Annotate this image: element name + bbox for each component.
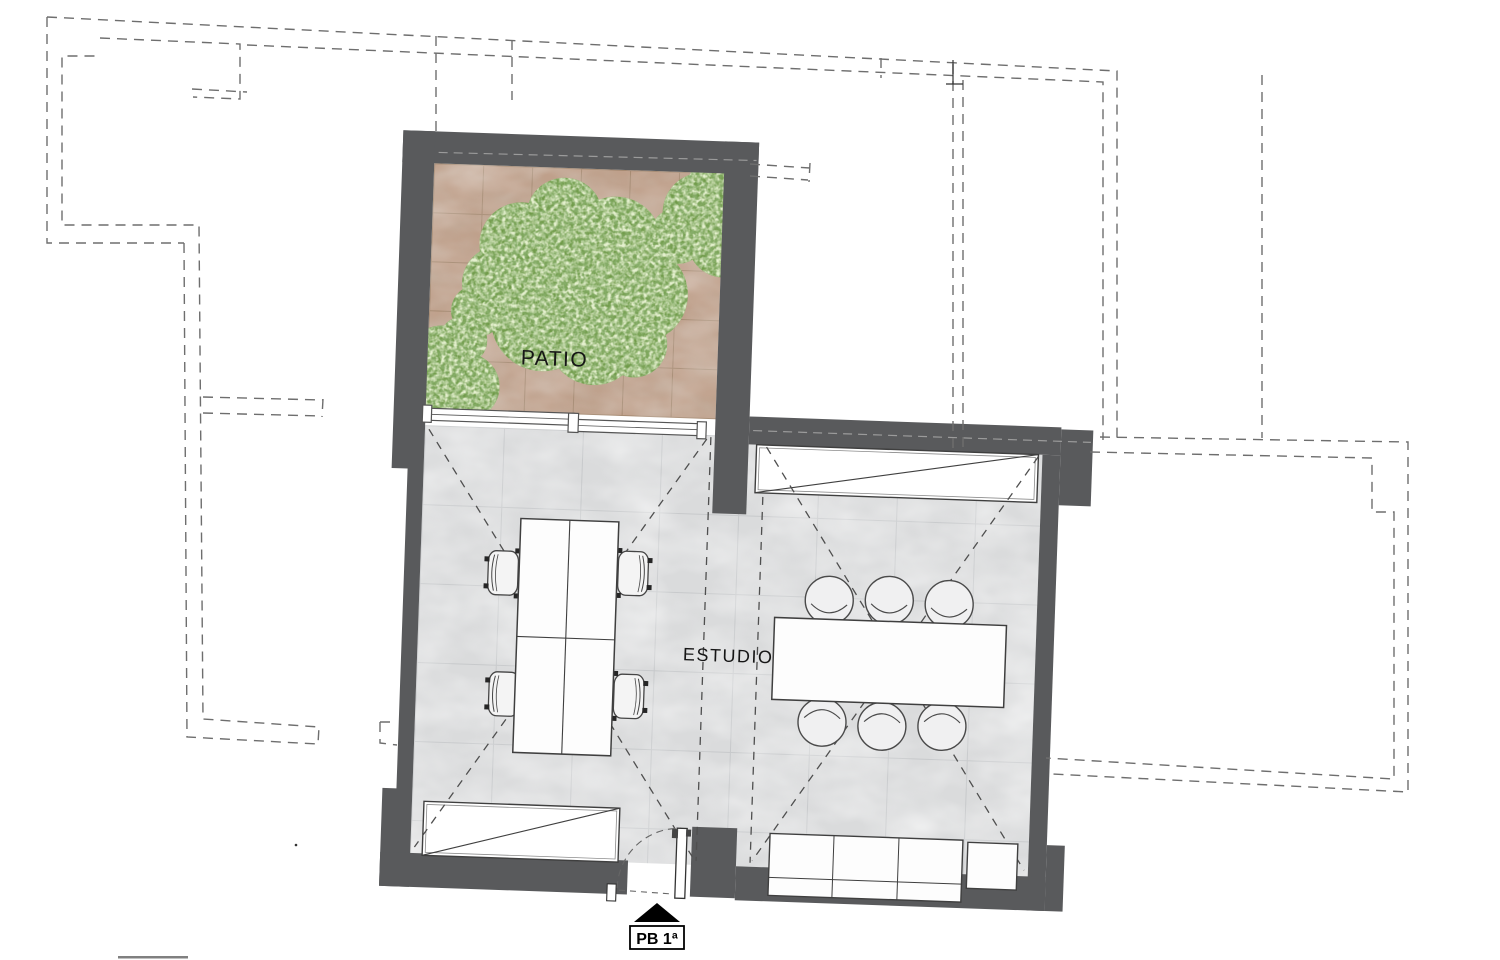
neighbor-outline-stub-patio: [750, 163, 810, 182]
door-hinge: [672, 829, 678, 838]
sofa: [768, 833, 963, 902]
entry-marker: PB 1ª: [630, 903, 684, 949]
floor-plan-page: PATIO ESTUDIO PB 1ª: [0, 0, 1500, 960]
floor-plan-canvas: PATIO ESTUDIO PB 1ª: [0, 0, 1500, 960]
floor-plan: PATIO ESTUDIO: [377, 130, 1103, 917]
entry-label: PB 1ª: [636, 931, 678, 948]
side-table: [966, 842, 1018, 890]
neighbor-outline-right-inner: [1046, 452, 1394, 779]
survey-tick-marks: [946, 60, 963, 84]
door-threshold: [619, 890, 674, 894]
scan-artifact-dot: [295, 844, 298, 847]
round-chair-top-3: [924, 580, 974, 630]
patio-label: PATIO: [520, 346, 588, 371]
neighbor-outline-bracket-left-wall: [380, 722, 397, 745]
door-hinge-2: [686, 829, 691, 836]
wall-pier-top-right: [1059, 429, 1094, 506]
door-leaf: [675, 828, 687, 898]
studio-label: ESTUDIO: [683, 644, 774, 667]
round-chair-bottom-2: [857, 701, 907, 751]
window-top-right: [755, 445, 1039, 503]
round-chair-top-1: [804, 576, 854, 626]
neighbor-outline-cross-wall: [953, 64, 963, 453]
wall-pier-bottom-right: [1045, 845, 1065, 912]
wall-door-block: [690, 827, 737, 899]
window-bottom-left: [422, 801, 620, 862]
dining-table: [772, 617, 1007, 707]
round-chair-bottom-1: [797, 697, 847, 747]
round-chair-bottom-3: [917, 702, 967, 752]
door-jamb-left: [607, 884, 617, 901]
entry-arrow-icon: [634, 903, 680, 922]
scan-artifact-line: [118, 956, 188, 959]
neighbor-outline-stub-left: [203, 397, 323, 417]
neighbor-outline-stub-1: [192, 89, 247, 92]
round-chair-top-2: [864, 576, 914, 626]
neighbor-outline-inner-left: [100, 38, 240, 99]
work-table: [513, 519, 619, 756]
neighbor-outline-left: [47, 17, 319, 744]
neighbor-outline-right-outer: [1052, 437, 1408, 792]
